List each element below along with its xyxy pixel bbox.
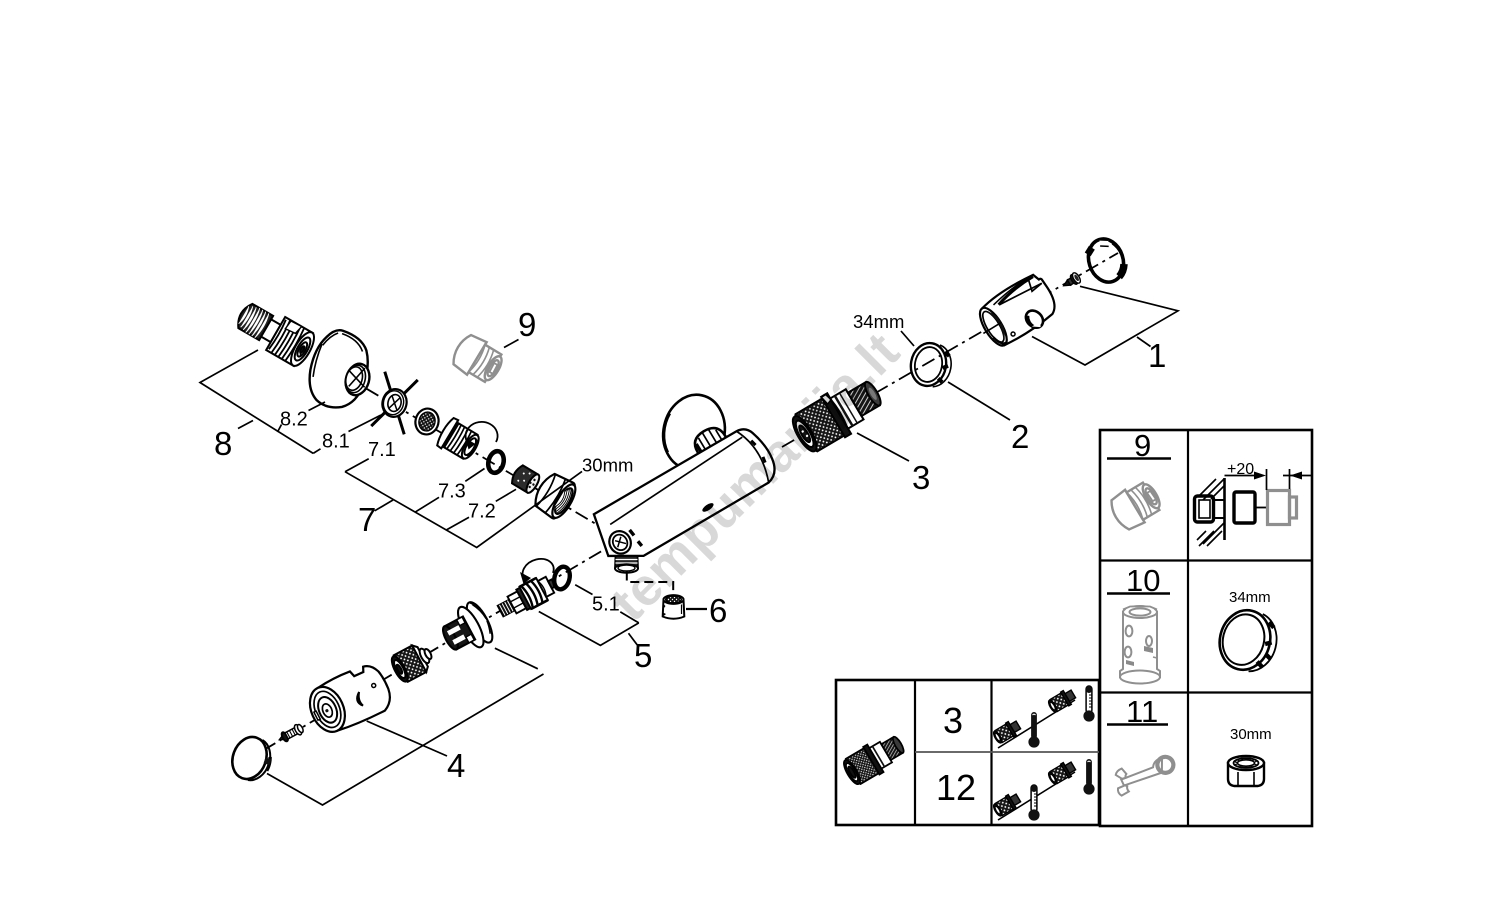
svg-text:6: 6 [709,592,727,629]
svg-text:12: 12 [936,767,976,808]
svg-text:3: 3 [943,700,963,741]
svg-text:8.1: 8.1 [322,431,350,453]
svg-text:1: 1 [1148,337,1166,374]
svg-text:8: 8 [214,425,232,462]
svg-text:4: 4 [447,747,465,784]
svg-text:7.1: 7.1 [368,439,396,461]
svg-text:5: 5 [634,637,652,674]
svg-text:7.3: 7.3 [438,481,466,503]
svg-text:3: 3 [912,459,930,496]
svg-text:30mm: 30mm [582,455,633,476]
svg-text:+20: +20 [1227,461,1254,478]
svg-text:7.2: 7.2 [468,501,496,523]
svg-text:8.2: 8.2 [280,409,308,431]
svg-text:7: 7 [358,501,376,538]
svg-text:9: 9 [518,306,536,343]
svg-text:30mm: 30mm [1230,726,1272,743]
svg-text:2: 2 [1011,418,1029,455]
svg-text:34mm: 34mm [1229,589,1271,606]
